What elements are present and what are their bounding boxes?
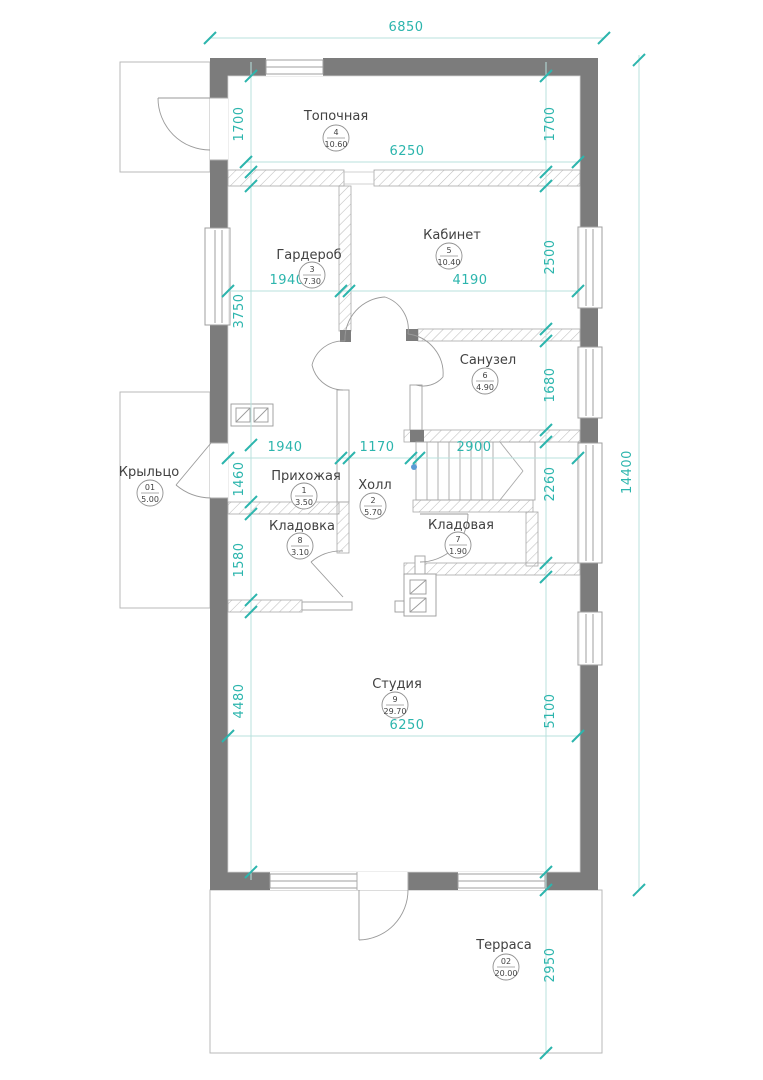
room-boiler-name: Топочная	[303, 109, 368, 124]
floor-plan-drawing: 6850 14400 1700 1700 6250 1940 4190 2500…	[0, 0, 763, 1080]
room-bathroom-area: 4.90	[476, 383, 494, 392]
wall-storeroom-top	[228, 502, 339, 514]
porch-outline	[120, 392, 210, 608]
wall-bathroom-bottom	[404, 430, 580, 442]
room-bathroom-name: Санузел	[460, 353, 516, 368]
dim-studio-width: 6250	[389, 718, 424, 733]
wall-storeroom-right	[337, 502, 349, 553]
dim-stairs-width: 2900	[456, 440, 491, 455]
room-storeroom-area: 3.10	[291, 548, 309, 557]
interior-walls	[228, 170, 580, 612]
room-hall: Холл 2 5.70	[358, 478, 391, 519]
window-stairs	[578, 443, 602, 563]
dim-wardrobe-height: 3750	[232, 293, 247, 328]
dim-office-width: 4190	[452, 273, 487, 288]
window-wardrobe	[205, 228, 230, 325]
room-entry-number: 1	[301, 486, 306, 495]
window-studio-bottom-left	[270, 872, 357, 890]
dim-studio-left: 4480	[232, 683, 247, 718]
dim-entry-width: 1940	[267, 440, 302, 455]
room-terrace-area: 20.00	[495, 969, 518, 978]
hall-center-doors	[312, 297, 443, 390]
dim-studio-right: 5100	[543, 693, 558, 728]
room-hall-area: 5.70	[364, 508, 382, 517]
room-porch-number: 01	[145, 483, 155, 492]
room-terrace-name: Терраса	[475, 938, 532, 953]
room-hall-number: 2	[370, 496, 375, 505]
dim-bath-height: 1680	[543, 367, 558, 402]
wall-bathroom-left	[410, 385, 422, 430]
room-storeroom: Кладовка 8 3.10	[269, 519, 335, 559]
room-office-number: 5	[446, 246, 451, 255]
room-entry-name: Прихожая	[271, 469, 341, 484]
dim-office-height: 2500	[543, 239, 558, 274]
room-bathroom-number: 6	[482, 371, 487, 380]
stairs-start-dot	[411, 464, 417, 470]
room-studio-number: 9	[392, 695, 397, 704]
window-studio-right	[578, 612, 602, 665]
room-boiler-area: 10.60	[325, 140, 348, 149]
room-wardrobe-number: 3	[309, 265, 314, 274]
wall-storeroom-bottom	[228, 600, 302, 612]
window-top	[266, 58, 323, 76]
wall-pantry-bottom	[404, 563, 580, 575]
dim-storeroom-height: 1580	[232, 542, 247, 577]
dim-boiler-width: 6250	[389, 144, 424, 159]
room-studio-area: 29.70	[384, 707, 407, 716]
vent-block-studio	[395, 574, 436, 616]
room-entry-area: 3.50	[295, 498, 313, 507]
floor-plan-canvas: 6850 14400 1700 1700 6250 1940 4190 2500…	[0, 0, 763, 1080]
room-studio-name: Студия	[372, 677, 422, 692]
room-boiler: Топочная 4 10.60	[303, 109, 368, 151]
room-pantry: Кладовая 7 1.90	[428, 518, 494, 558]
wall-stairs-landing	[413, 500, 533, 512]
dim-entry-height: 1460	[232, 461, 247, 496]
room-wardrobe-name: Гардероб	[276, 248, 341, 263]
window-bathroom	[578, 347, 602, 418]
room-office-name: Кабинет	[423, 228, 481, 243]
vent-block-wardrobe	[231, 404, 273, 426]
storeroom-door	[311, 551, 343, 597]
window-office	[578, 227, 602, 308]
room-boiler-number: 4	[333, 128, 338, 137]
room-hall-name: Холл	[358, 478, 391, 493]
room-pantry-area: 1.90	[449, 547, 467, 556]
room-porch-area: 5.00	[141, 495, 159, 504]
boiler-door-opening	[210, 98, 228, 160]
wall-pantry-left-stub	[415, 556, 425, 575]
dim-overall-height: 14400	[620, 450, 635, 494]
wall-entry-hall	[337, 390, 349, 502]
dim-boiler-right: 1700	[543, 106, 558, 141]
room-office: Кабинет 5 10.40	[423, 228, 481, 269]
room-pantry-name: Кладовая	[428, 518, 494, 533]
room-bathroom: Санузел 6 4.90	[460, 353, 516, 394]
dim-stairs-height: 2260	[543, 466, 558, 501]
wall-pantry-right	[526, 512, 538, 566]
room-office-area: 10.40	[438, 258, 461, 267]
stairs-cut-line-lower	[500, 471, 523, 500]
stairs-cut-line-upper	[500, 442, 523, 471]
room-wardrobe-area: 7.30	[303, 277, 321, 286]
window-studio-bottom-right	[458, 872, 545, 890]
dim-boiler-left: 1700	[232, 106, 247, 141]
dim-overall-width: 6850	[388, 20, 423, 35]
wall-bathroom-top	[418, 329, 580, 341]
room-storeroom-number: 8	[297, 536, 302, 545]
room-studio: Студия 9 29.70	[372, 677, 422, 718]
room-storeroom-name: Кладовка	[269, 519, 335, 534]
dim-hall-width: 1170	[359, 440, 394, 455]
dim-terrace-height: 2950	[543, 947, 558, 982]
room-porch-name: Крыльцо	[119, 465, 180, 480]
room-terrace-number: 02	[501, 957, 511, 966]
entrance-door-opening	[210, 443, 228, 498]
room-pantry-number: 7	[455, 535, 460, 544]
terrace-door-opening	[357, 872, 408, 890]
side-platform-outline	[120, 62, 210, 172]
storeroom-threshold	[302, 602, 352, 610]
